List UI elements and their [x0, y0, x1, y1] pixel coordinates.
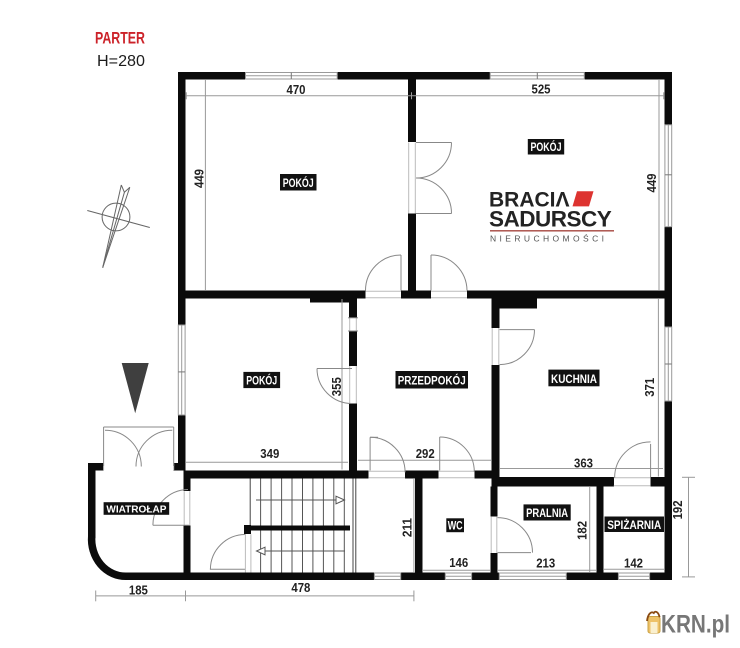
svg-text:349: 349	[260, 447, 279, 461]
svg-text:449: 449	[192, 169, 206, 188]
svg-text:371: 371	[643, 378, 657, 397]
svg-text:211: 211	[400, 518, 414, 537]
svg-text:470: 470	[287, 83, 306, 97]
svg-text:478: 478	[291, 581, 310, 595]
svg-text:KRN.pl: KRN.pl	[661, 611, 730, 639]
svg-text:PRALNIA: PRALNIA	[526, 506, 568, 520]
svg-text:POKÓJ: POKÓJ	[531, 141, 562, 154]
svg-text:192: 192	[671, 500, 685, 519]
svg-text:POKÓJ: POKÓJ	[246, 375, 277, 388]
svg-text:449: 449	[645, 173, 659, 192]
svg-text:182: 182	[575, 521, 589, 540]
svg-text:POKÓJ: POKÓJ	[283, 177, 314, 190]
svg-text:146: 146	[449, 556, 468, 570]
svg-text:PARTER: PARTER	[95, 30, 145, 48]
svg-text:PRZEDPOKÓJ: PRZEDPOKÓJ	[398, 372, 466, 387]
svg-text:SPIŻARNIA: SPIŻARNIA	[607, 517, 661, 532]
svg-text:363: 363	[574, 457, 593, 471]
svg-text:KUCHNIA: KUCHNIA	[551, 372, 597, 386]
svg-text:WIATROŁAP: WIATROŁAP	[106, 503, 166, 515]
svg-text:NIERUCHOMOŚCI: NIERUCHOMOŚCI	[490, 233, 607, 244]
svg-text:213: 213	[536, 557, 555, 571]
svg-text:185: 185	[129, 584, 148, 598]
svg-text:525: 525	[532, 83, 551, 97]
svg-text:142: 142	[624, 556, 643, 570]
svg-text:292: 292	[416, 447, 435, 461]
svg-text:WC: WC	[448, 521, 463, 533]
svg-text:SADURSCY: SADURSCY	[489, 207, 612, 232]
svg-text:H=280: H=280	[97, 53, 145, 70]
svg-text:355: 355	[330, 377, 344, 396]
